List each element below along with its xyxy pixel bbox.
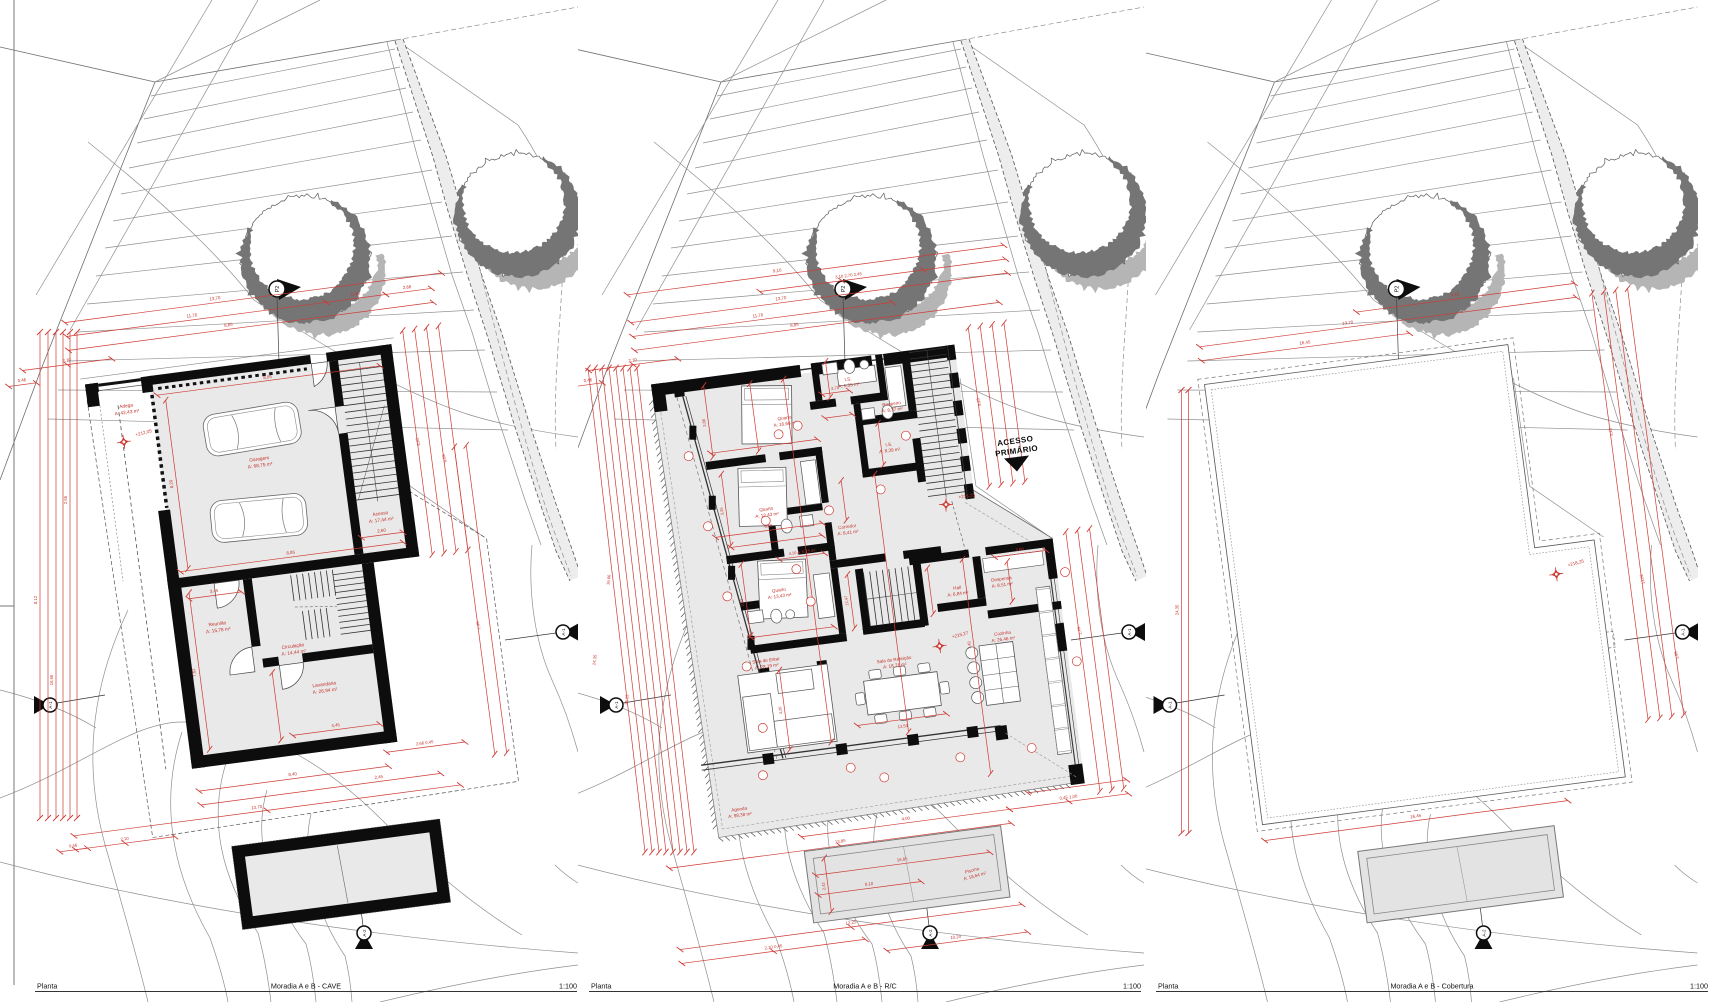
svg-text:1:100: 1:100 — [1690, 982, 1708, 991]
svg-text:Moradia A e B - Cobertura: Moradia A e B - Cobertura — [1390, 982, 1473, 991]
svg-text:Planta: Planta — [37, 982, 57, 991]
svg-text:Hall: Hall — [953, 585, 962, 591]
svg-text:I.S.: I.S. — [885, 442, 892, 448]
svg-text:8,12: 8,12 — [33, 595, 38, 604]
svg-text:24,35: 24,35 — [1175, 604, 1180, 615]
svg-text:1:100: 1:100 — [559, 982, 577, 991]
svg-text:Moradia A e B - CAVE: Moradia A e B - CAVE — [271, 982, 341, 991]
svg-text:I.S.: I.S. — [844, 376, 851, 382]
svg-text:Planta: Planta — [591, 982, 611, 991]
svg-text:1:100: 1:100 — [1123, 982, 1141, 991]
svg-text:16,66: 16,66 — [49, 674, 54, 685]
svg-text:Planta: Planta — [1158, 982, 1178, 991]
svg-text:2,66: 2,66 — [63, 495, 68, 504]
svg-text:Moradia A e B - R/C: Moradia A e B - R/C — [833, 982, 897, 991]
